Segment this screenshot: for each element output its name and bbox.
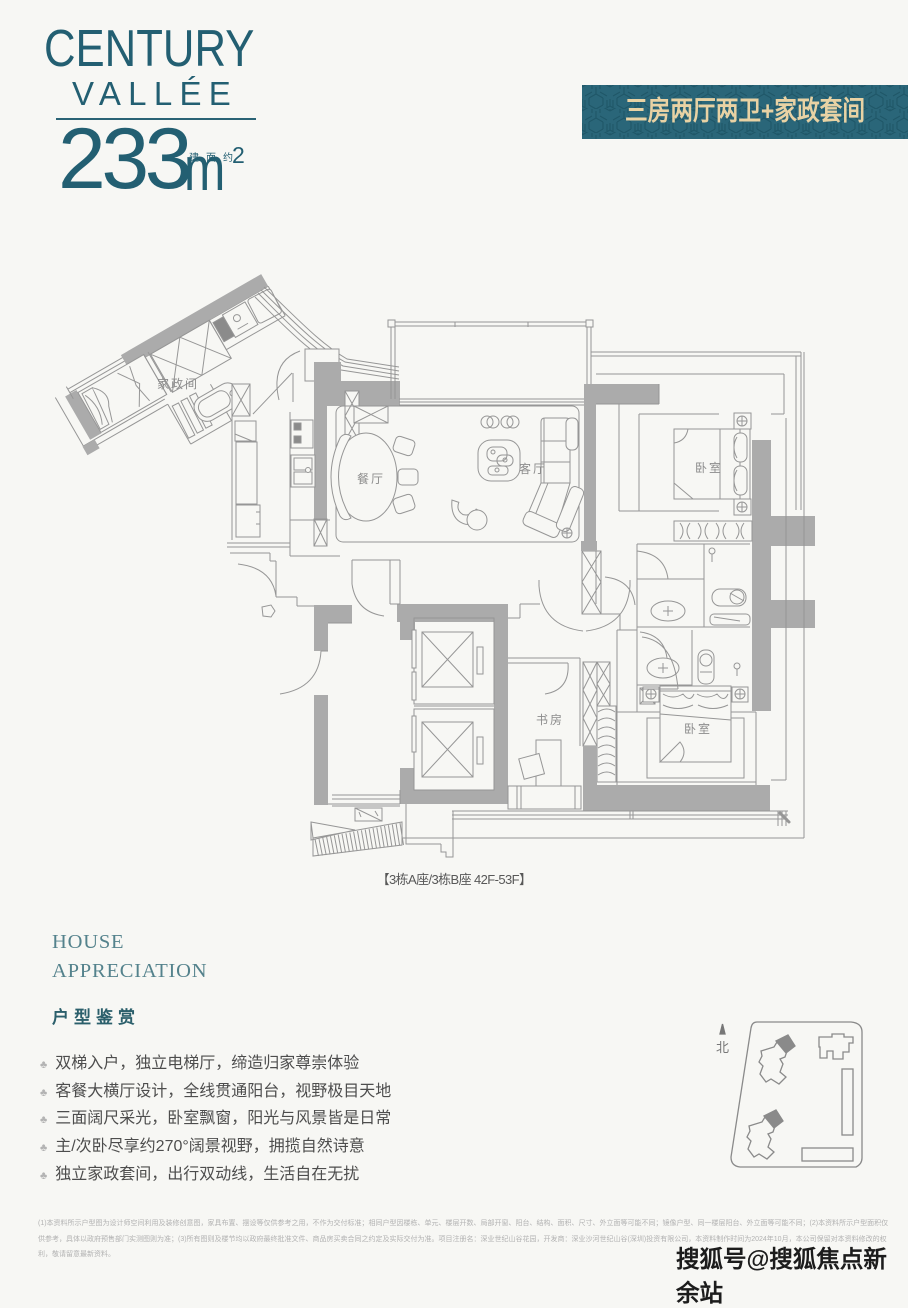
svg-text:卧室: 卧室	[695, 460, 723, 475]
svg-text:餐厅: 餐厅	[357, 471, 385, 486]
svg-text:家政间: 家政间	[157, 376, 199, 391]
svg-text:书房: 书房	[536, 712, 564, 727]
svg-text:卧室: 卧室	[684, 721, 712, 736]
svg-text:北: 北	[716, 1040, 729, 1055]
svg-text:客厅: 客厅	[519, 461, 547, 476]
